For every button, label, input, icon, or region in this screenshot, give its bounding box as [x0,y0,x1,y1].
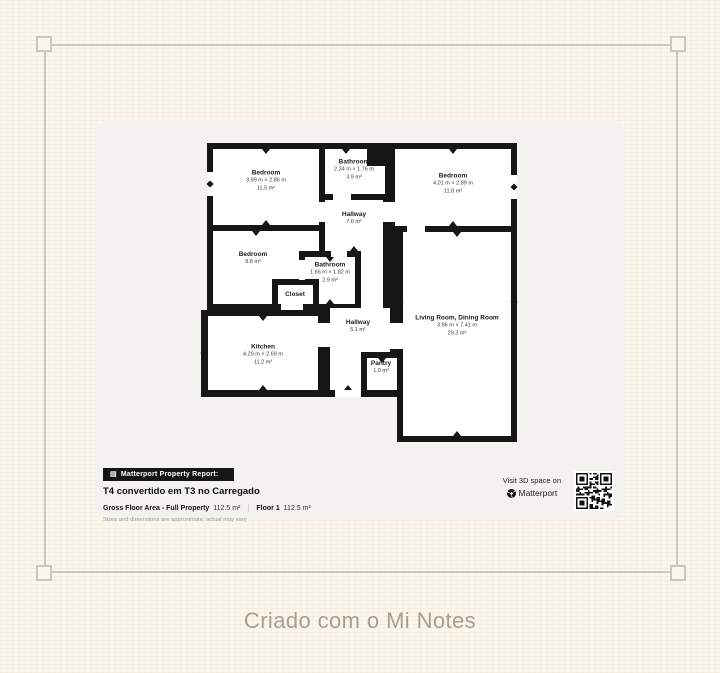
gross-area-value: 112.5 m² [213,505,240,512]
report-title: T4 convertido em T3 no Carregado [103,486,260,497]
visit-3d-block: Visit 3D space on Matterport [503,476,561,498]
matterport-brand-name: Matterport [519,488,558,498]
floor-value: 112.5 m² [284,505,311,512]
report-disclaimer: Sizes and dimensions are approximate, ac… [103,517,247,523]
note-share-page: Bedroom 3.99 m × 2.86 m 11.5 m² Bathroom… [0,0,720,673]
qr-code [574,471,614,511]
matterport-report-icon: ▤ [110,471,117,478]
frame-corner-top-left [36,36,52,52]
gross-area-label: Gross Floor Area - Full Property [103,505,209,512]
floorplan-walls [95,120,625,520]
matterport-logo-icon [507,489,516,498]
matterport-brand: Matterport [503,488,561,498]
meta-divider: | [247,503,249,512]
floor-label: Floor 1 [256,505,279,512]
floorplan-card: Bedroom 3.99 m × 2.86 m 11.5 m² Bathroom… [95,120,625,520]
app-caption: Criado com o Mi Notes [0,608,720,634]
report-badge-label: Matterport Property Report: [121,471,219,478]
visit-3d-label: Visit 3D space on [503,476,561,485]
report-meta: Gross Floor Area - Full Property 112.5 m… [103,503,311,512]
frame-corner-bottom-left [36,565,52,581]
report-badge: ▤ Matterport Property Report: [103,468,234,481]
frame-corner-bottom-right [670,565,686,581]
frame-corner-top-right [670,36,686,52]
